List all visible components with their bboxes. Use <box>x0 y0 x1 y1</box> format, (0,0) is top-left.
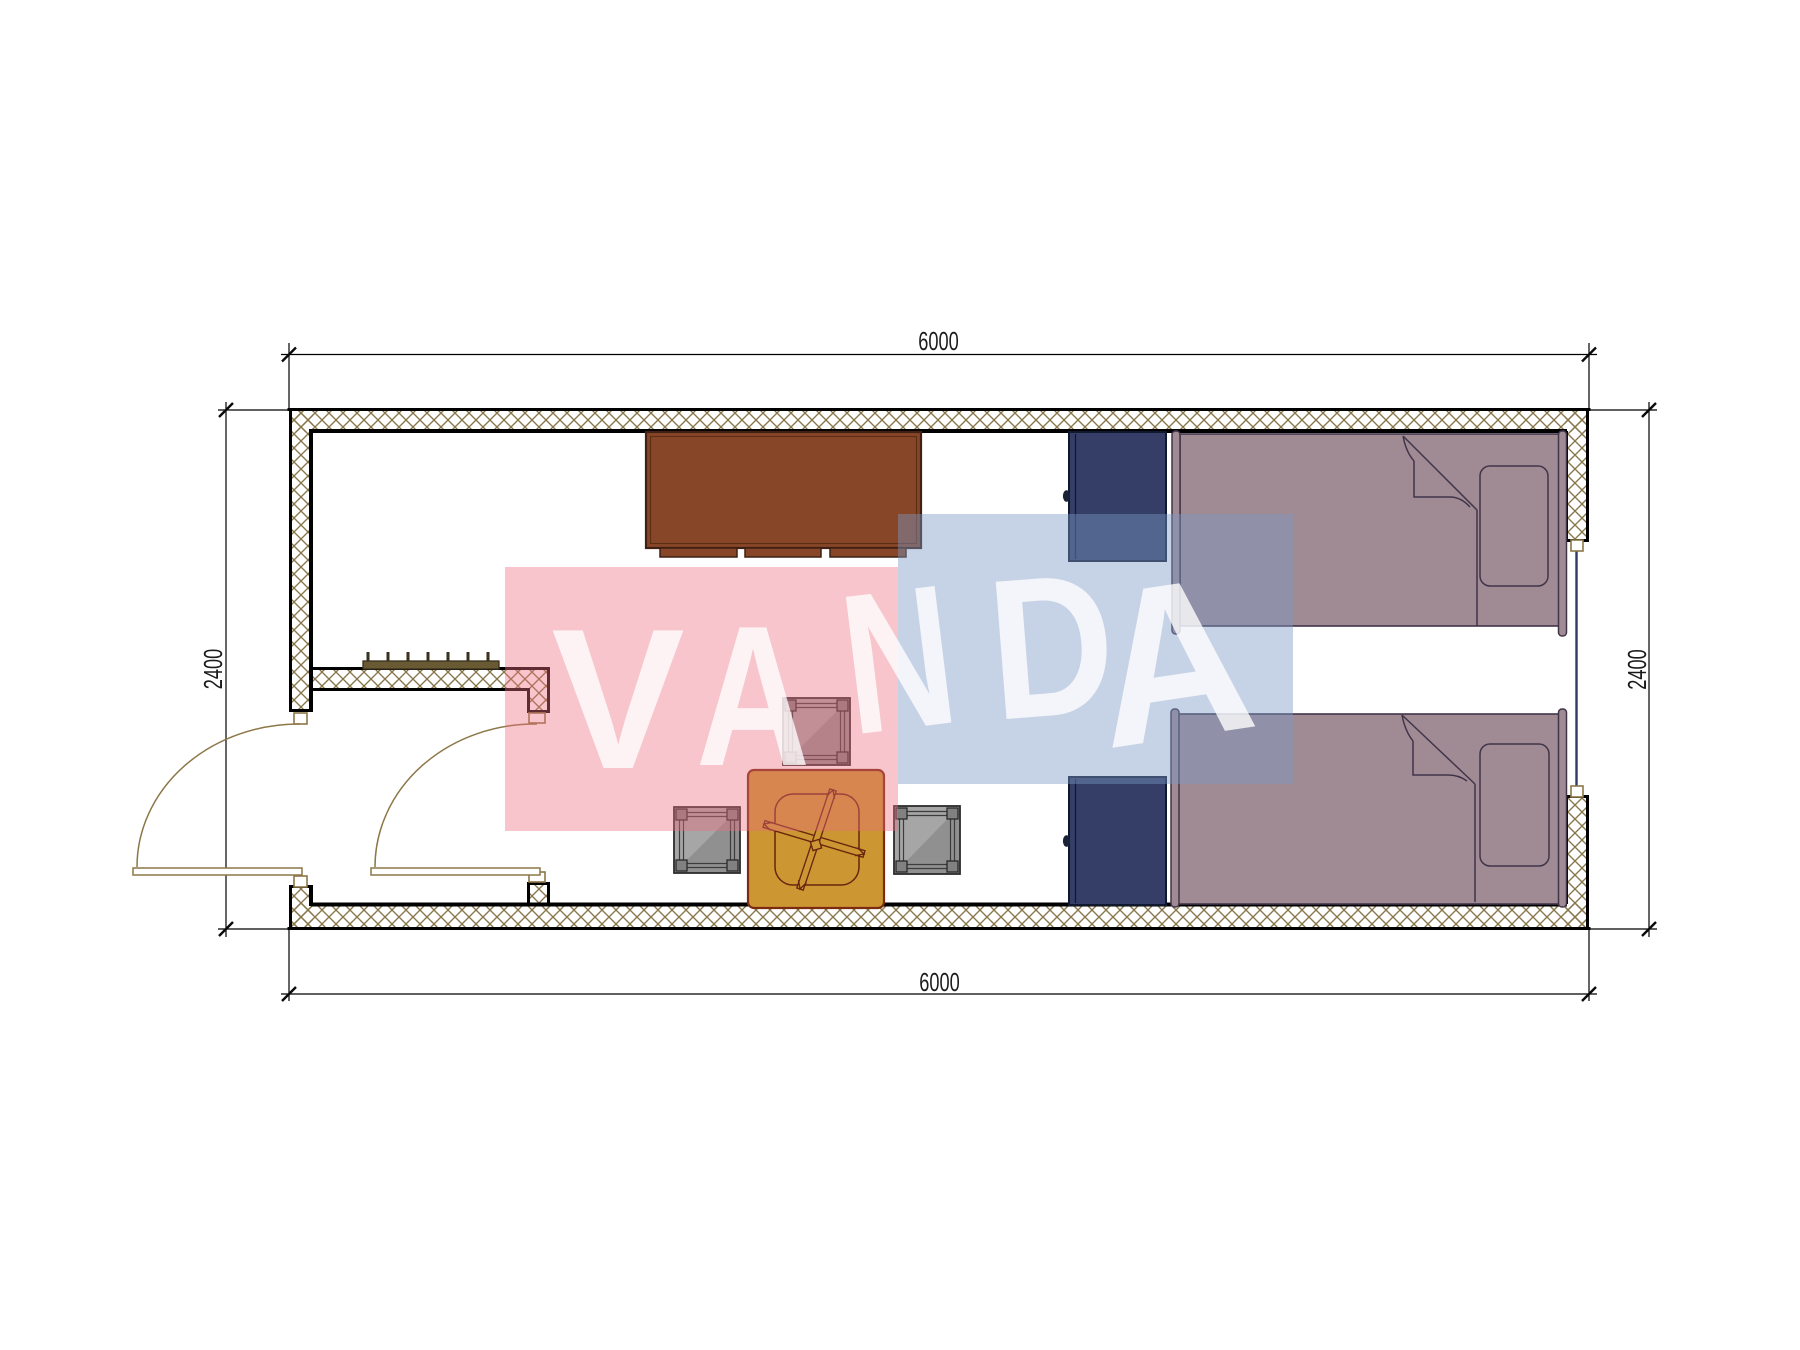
svg-text:2400: 2400 <box>199 649 228 689</box>
svg-text:V: V <box>551 588 684 811</box>
svg-text:A: A <box>696 585 810 808</box>
svg-text:2400: 2400 <box>1623 649 1652 689</box>
svg-text:6000: 6000 <box>919 968 959 997</box>
svg-text:6000: 6000 <box>918 327 958 356</box>
